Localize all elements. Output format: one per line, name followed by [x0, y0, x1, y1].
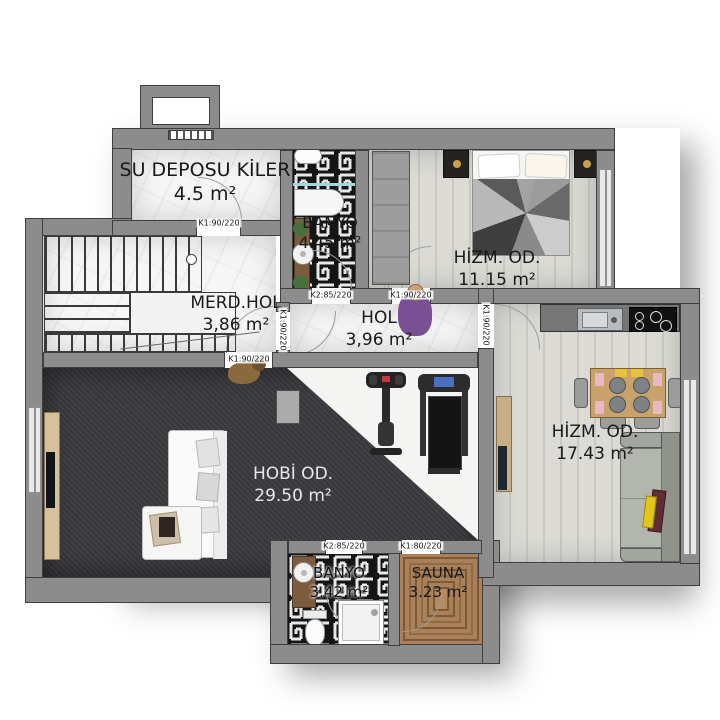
- wall-bottom-right: [482, 562, 700, 586]
- wardrobe: [372, 151, 410, 285]
- treadmill-rail: [462, 390, 468, 456]
- exercise-bike-handlebar: [366, 372, 406, 388]
- toilet: [294, 148, 322, 164]
- bike-grip: [395, 375, 403, 385]
- bathtub: [294, 189, 344, 216]
- room-name: HOBİ OD.: [253, 464, 333, 486]
- pillow: [477, 153, 520, 179]
- room-area: 4.45 m²: [299, 233, 362, 253]
- nightstand-right: [574, 150, 598, 178]
- sink-bowl: [582, 312, 608, 328]
- door-size-label: K1:80/220: [398, 542, 443, 551]
- dining-table: [590, 368, 666, 418]
- plate: [633, 396, 650, 413]
- room-label-merd-hol: MERD.HOL 3,86 m²: [190, 293, 281, 337]
- door-size-label: K1:90/220: [226, 355, 271, 364]
- staircase-lower-flight: [44, 334, 236, 352]
- treadmill-rail: [420, 390, 426, 456]
- burner: [650, 311, 662, 323]
- wall-su-deposu-bottom-a: [112, 220, 197, 236]
- room-name: MERD.HOL: [190, 293, 281, 315]
- treadmill-end: [428, 468, 460, 474]
- window-mullion: [34, 406, 36, 494]
- exercise-bike-frame: [382, 388, 390, 426]
- door-size-label: K1:90/220: [388, 291, 433, 300]
- bed: [472, 150, 570, 256]
- column: [276, 390, 300, 424]
- pillow: [195, 438, 220, 468]
- treadmill-screen: [434, 377, 454, 387]
- tv-screen: [498, 446, 507, 490]
- faucet: [611, 317, 617, 323]
- toilet: [305, 619, 325, 646]
- room-label-banyo-upper: BANYO 4.45 m²: [299, 213, 362, 254]
- room-area: 4.5 m²: [120, 182, 291, 206]
- wall-block-top-a: [288, 540, 326, 554]
- wall-banyo-sauna-divider: [388, 552, 400, 646]
- shower-tray: [338, 600, 384, 645]
- room-name: BANYO: [310, 564, 369, 583]
- room-area: 3.42 m²: [310, 583, 369, 602]
- burner: [635, 312, 644, 321]
- nightstand-left: [443, 150, 469, 178]
- room-name: HİZM. OD.: [552, 422, 639, 444]
- sofa-chaise: [142, 506, 202, 560]
- wall-hobi-top-a: [43, 352, 225, 368]
- staircase-side-flight: [44, 292, 130, 334]
- glass-partition: [293, 183, 355, 186]
- plate: [609, 396, 626, 413]
- placemat: [631, 369, 643, 377]
- wall-block-top-c: [440, 540, 482, 554]
- floor-plan-canvas: SU DEPOSU KİLER 4.5 m² BANYO 4.45 m² HİZ…: [0, 0, 720, 720]
- pillow: [196, 472, 220, 502]
- kitchen-sink: [577, 308, 623, 331]
- room-label-hizm-od-2: HİZM. OD. 17.43 m²: [552, 422, 639, 466]
- room-name: BANYO: [299, 213, 362, 233]
- nightstand-lamp: [583, 160, 591, 168]
- tv-screen: [46, 452, 55, 508]
- bed-blanket: [473, 179, 569, 255]
- dining-chair: [574, 378, 588, 408]
- treadmill-belt: [428, 396, 462, 470]
- exercise-bike-base: [370, 448, 402, 455]
- room-label-hobi-od: HOBİ OD. 29.50 m²: [253, 464, 333, 508]
- room-area: 11.15 m²: [454, 270, 541, 292]
- placemat: [615, 369, 627, 377]
- cooktop: [629, 307, 677, 332]
- shower-drain: [371, 609, 378, 616]
- room-area: 29.50 m²: [253, 486, 333, 508]
- napkin: [595, 401, 604, 414]
- burner: [635, 321, 644, 330]
- tray: [159, 517, 175, 537]
- door-size-label: K1:90/220: [482, 302, 491, 347]
- toilet-cistern: [303, 610, 327, 619]
- room-area: 17.43 m²: [552, 444, 639, 466]
- wall-block-bottom: [270, 644, 500, 664]
- window-mullion: [605, 168, 607, 288]
- room-name: HİZM. OD.: [454, 248, 541, 270]
- napkin: [595, 373, 604, 386]
- lightshaft-opening: [152, 97, 210, 125]
- wall-bottom-left: [25, 577, 287, 603]
- sofa-armrest: [620, 548, 662, 562]
- room-name: HOL: [346, 308, 413, 330]
- kitchen-counter: [540, 304, 680, 332]
- window-right-room: [682, 378, 698, 556]
- room-area: 3.23 m²: [409, 583, 468, 602]
- napkin: [653, 373, 662, 386]
- pillow: [524, 153, 567, 179]
- door-size-label: K2:85/220: [321, 542, 366, 551]
- door-size-label: K1:90/220: [279, 307, 288, 352]
- burner: [660, 320, 672, 332]
- wall-block-top-b: [362, 540, 402, 554]
- window-mullion: [689, 378, 691, 556]
- door-size-label: K1:90/220: [196, 219, 241, 228]
- wall-mid-b: [350, 288, 392, 304]
- room-area: 3,86 m²: [190, 315, 281, 337]
- drain: [301, 570, 307, 576]
- room-label-sauna: SAUNA 3.23 m²: [409, 564, 468, 602]
- room-label-hizm-od-1: HİZM. OD. 11.15 m²: [454, 248, 541, 292]
- nightstand-lamp: [453, 160, 461, 168]
- staircase-upper-flight: [44, 236, 202, 292]
- window-bedroom: [598, 168, 613, 288]
- room-area: 3,96 m²: [346, 330, 413, 352]
- room-label-hol: HOL 3,96 m²: [346, 308, 413, 352]
- room-name: SAUNA: [409, 564, 468, 583]
- bike-grip: [369, 375, 377, 385]
- plate: [609, 377, 626, 394]
- wall-hobi-top-b: [272, 352, 478, 368]
- stair-marker: [186, 254, 197, 265]
- room-name: SU DEPOSU KİLER: [120, 158, 291, 182]
- window-grille: [168, 130, 214, 140]
- bike-console: [382, 376, 390, 382]
- door-size-label: K2:85/220: [308, 291, 353, 300]
- napkin: [653, 401, 662, 414]
- window-hobby: [27, 406, 42, 494]
- room-label-su-deposu: SU DEPOSU KİLER 4.5 m²: [120, 158, 291, 207]
- plate: [633, 377, 650, 394]
- room-label-banyo-lower: BANYO 3.42 m²: [310, 564, 369, 602]
- dog-figure: [228, 362, 260, 384]
- exercise-bike-body: [378, 422, 394, 446]
- treadmill: [418, 374, 470, 474]
